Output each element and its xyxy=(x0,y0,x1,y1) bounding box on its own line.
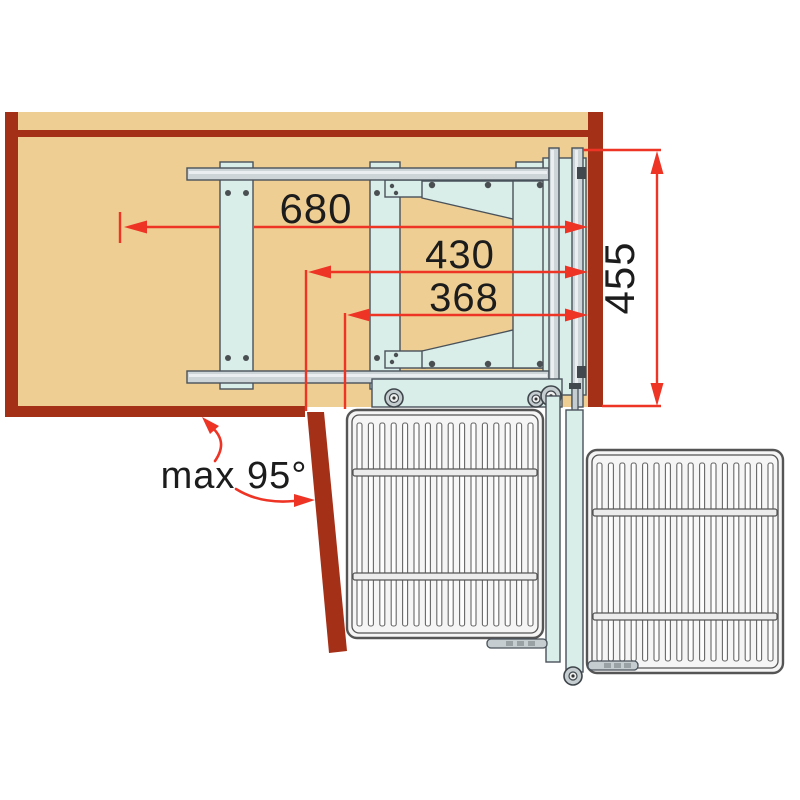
cabinet-door-open xyxy=(307,412,347,653)
pivot-assembly xyxy=(372,379,562,407)
label-368: 368 xyxy=(429,276,499,320)
mech-step-upper xyxy=(385,180,425,197)
label-680: 680 xyxy=(279,185,352,232)
diagram-canvas: 680 430 368 455 max 95° xyxy=(0,0,800,800)
rail-clip-bottom xyxy=(577,366,586,378)
bracket-rear xyxy=(220,172,253,377)
label-max-angle: max 95° xyxy=(161,455,308,497)
arm-rod xyxy=(572,386,578,412)
cabinet-top-panel-edge xyxy=(18,130,588,137)
label-430: 430 xyxy=(425,233,495,277)
label-455: 455 xyxy=(596,241,643,314)
basket-left xyxy=(347,410,543,638)
arm-front xyxy=(546,396,560,662)
arm-rear xyxy=(566,410,583,672)
basket-right xyxy=(587,450,783,673)
mech-step-lower xyxy=(385,351,425,368)
mech-column xyxy=(513,181,546,368)
swing-arms xyxy=(546,383,583,685)
technical-diagram-corner-cabinet-pullout: 680 430 368 455 max 95° xyxy=(0,0,800,800)
rail-clip-top xyxy=(577,167,586,179)
cabinet-back-panel xyxy=(5,112,18,417)
wire-baskets xyxy=(347,410,783,673)
arm-rod-cap xyxy=(569,383,581,389)
bracket-mid xyxy=(370,172,400,377)
cabinet-bottom-panel xyxy=(5,406,305,417)
